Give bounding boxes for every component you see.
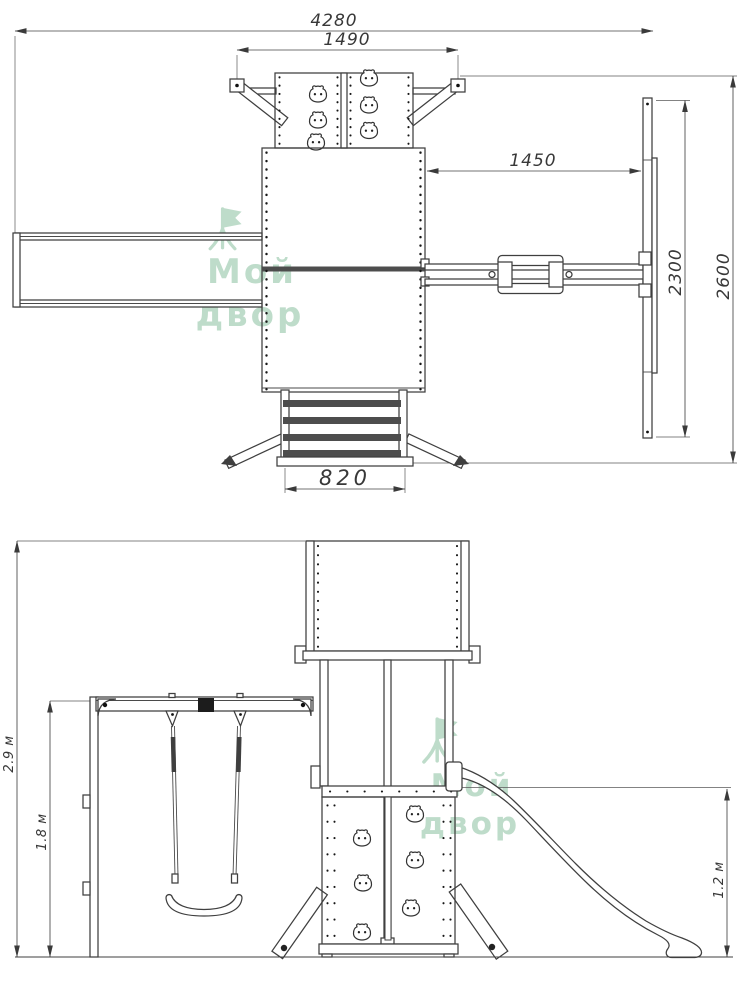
dim-aframe-depth: 2300: [656, 101, 690, 438]
brand-watermark-plan: Мой двор: [196, 209, 305, 335]
center-pole: [385, 797, 391, 940]
tower-post: [320, 660, 328, 786]
dim-label-1-8m: 1.8 м: [35, 813, 50, 850]
bolt-dot: [456, 84, 460, 88]
dim-label-1-2m: 1.2 м: [712, 861, 727, 898]
dim-total-height: 2.9 м: [2, 541, 305, 957]
dim-ladder-width: 820: [285, 466, 405, 493]
elevation-view: Мой двор 2.9 м 1.8 м: [2, 541, 733, 959]
climbing-hold-icon: [361, 122, 378, 138]
climbing-hold-icon: [361, 70, 378, 86]
deck-band: [322, 786, 457, 797]
aframe-leg-board: [643, 98, 652, 438]
swing-frame: [83, 694, 313, 958]
bolt-dot: [235, 84, 239, 88]
beam-bracket: [639, 284, 651, 297]
beam-bracket: [639, 252, 651, 265]
roof-base-band: [303, 651, 472, 660]
ladder-base: [277, 457, 413, 466]
deck-mid-beam: [262, 267, 425, 272]
roof-boards: [307, 541, 468, 651]
bolt-dot: [301, 703, 305, 707]
dim-label-2-9m: 2.9 м: [2, 735, 17, 772]
slide-end-cap: [13, 233, 20, 307]
climbing-hold-icon: [310, 112, 327, 128]
bolt-dot: [646, 103, 649, 106]
plan-ladder: [221, 390, 469, 468]
swing-seat-assembly: [166, 726, 242, 916]
leg-tab: [83, 795, 90, 808]
beam-clamp: [198, 698, 214, 712]
dim-label-2300: 2300: [666, 248, 686, 295]
climbing-hold-icon: [355, 875, 372, 891]
pinwheel-logo-icon: [210, 209, 239, 249]
drawing-canvas: Мой двор 4280 1490: [0, 0, 750, 1000]
climbing-hold-icon: [407, 852, 424, 868]
ladder-rung: [283, 450, 401, 457]
wall-base-band: [319, 944, 458, 954]
climbing-hold-icon: [310, 86, 327, 102]
plan-view: Мой двор 4280 1490: [13, 11, 737, 493]
brace-bolt: [489, 944, 495, 950]
dim-label-2600: 2600: [714, 252, 734, 299]
bolt-hole: [489, 272, 495, 278]
seat-connector: [232, 874, 238, 883]
ladder-rung: [283, 400, 401, 407]
panel-divider: [341, 73, 347, 148]
bolt-top: [237, 694, 243, 698]
ladder-rung: [283, 434, 401, 441]
brace-bolt: [281, 945, 287, 951]
slide-mount-bracket: [446, 762, 462, 791]
climbing-hold-icon: [354, 924, 371, 940]
dim-swing-frame-height: 1.8 м: [35, 701, 90, 957]
dim-beam-span: 1450: [427, 151, 641, 171]
bolt-hole: [566, 272, 572, 278]
plan-climbing-panel: [230, 70, 465, 150]
watermark-line2: двор: [420, 806, 520, 842]
glider-cap: [498, 262, 512, 287]
post-tab: [311, 766, 320, 788]
hanger-dot: [171, 713, 174, 716]
plan-crossbeam: [425, 256, 643, 294]
tower-roof: [295, 541, 480, 663]
climbing-hold-icon: [361, 97, 378, 113]
seat-connector: [172, 874, 178, 883]
rope-sleeve: [238, 737, 239, 772]
climbing-hold-icon: [403, 900, 420, 916]
rope-sleeve: [173, 737, 174, 772]
climbing-hold-icon: [354, 830, 371, 846]
plan-tower-deck: [262, 148, 429, 392]
dim-label-1450: 1450: [509, 151, 556, 171]
glider-cap: [549, 262, 563, 287]
swing-seat: [166, 895, 242, 916]
swing-leg: [90, 697, 98, 957]
ladder-rung: [283, 417, 401, 424]
roof-side-board: [461, 541, 469, 651]
dim-slide-height: 1.2 м: [712, 789, 727, 957]
dim-label-1490: 1490: [323, 30, 370, 50]
aframe-leg-board: [652, 158, 657, 373]
hanger-dot: [239, 713, 242, 716]
bolt-dot: [103, 703, 107, 707]
dim-label-820: 820: [319, 466, 371, 490]
roof-side-board: [306, 541, 314, 651]
dim-label-4280: 4280: [310, 11, 357, 31]
leg-tab: [83, 882, 90, 895]
pinwheel-logo-icon: [210, 209, 239, 249]
playground-technical-drawing: Мой двор 4280 1490: [0, 0, 750, 1000]
watermark-line1: Мой: [207, 252, 297, 292]
bolt-top: [169, 694, 175, 698]
bolt-dot: [646, 431, 649, 434]
